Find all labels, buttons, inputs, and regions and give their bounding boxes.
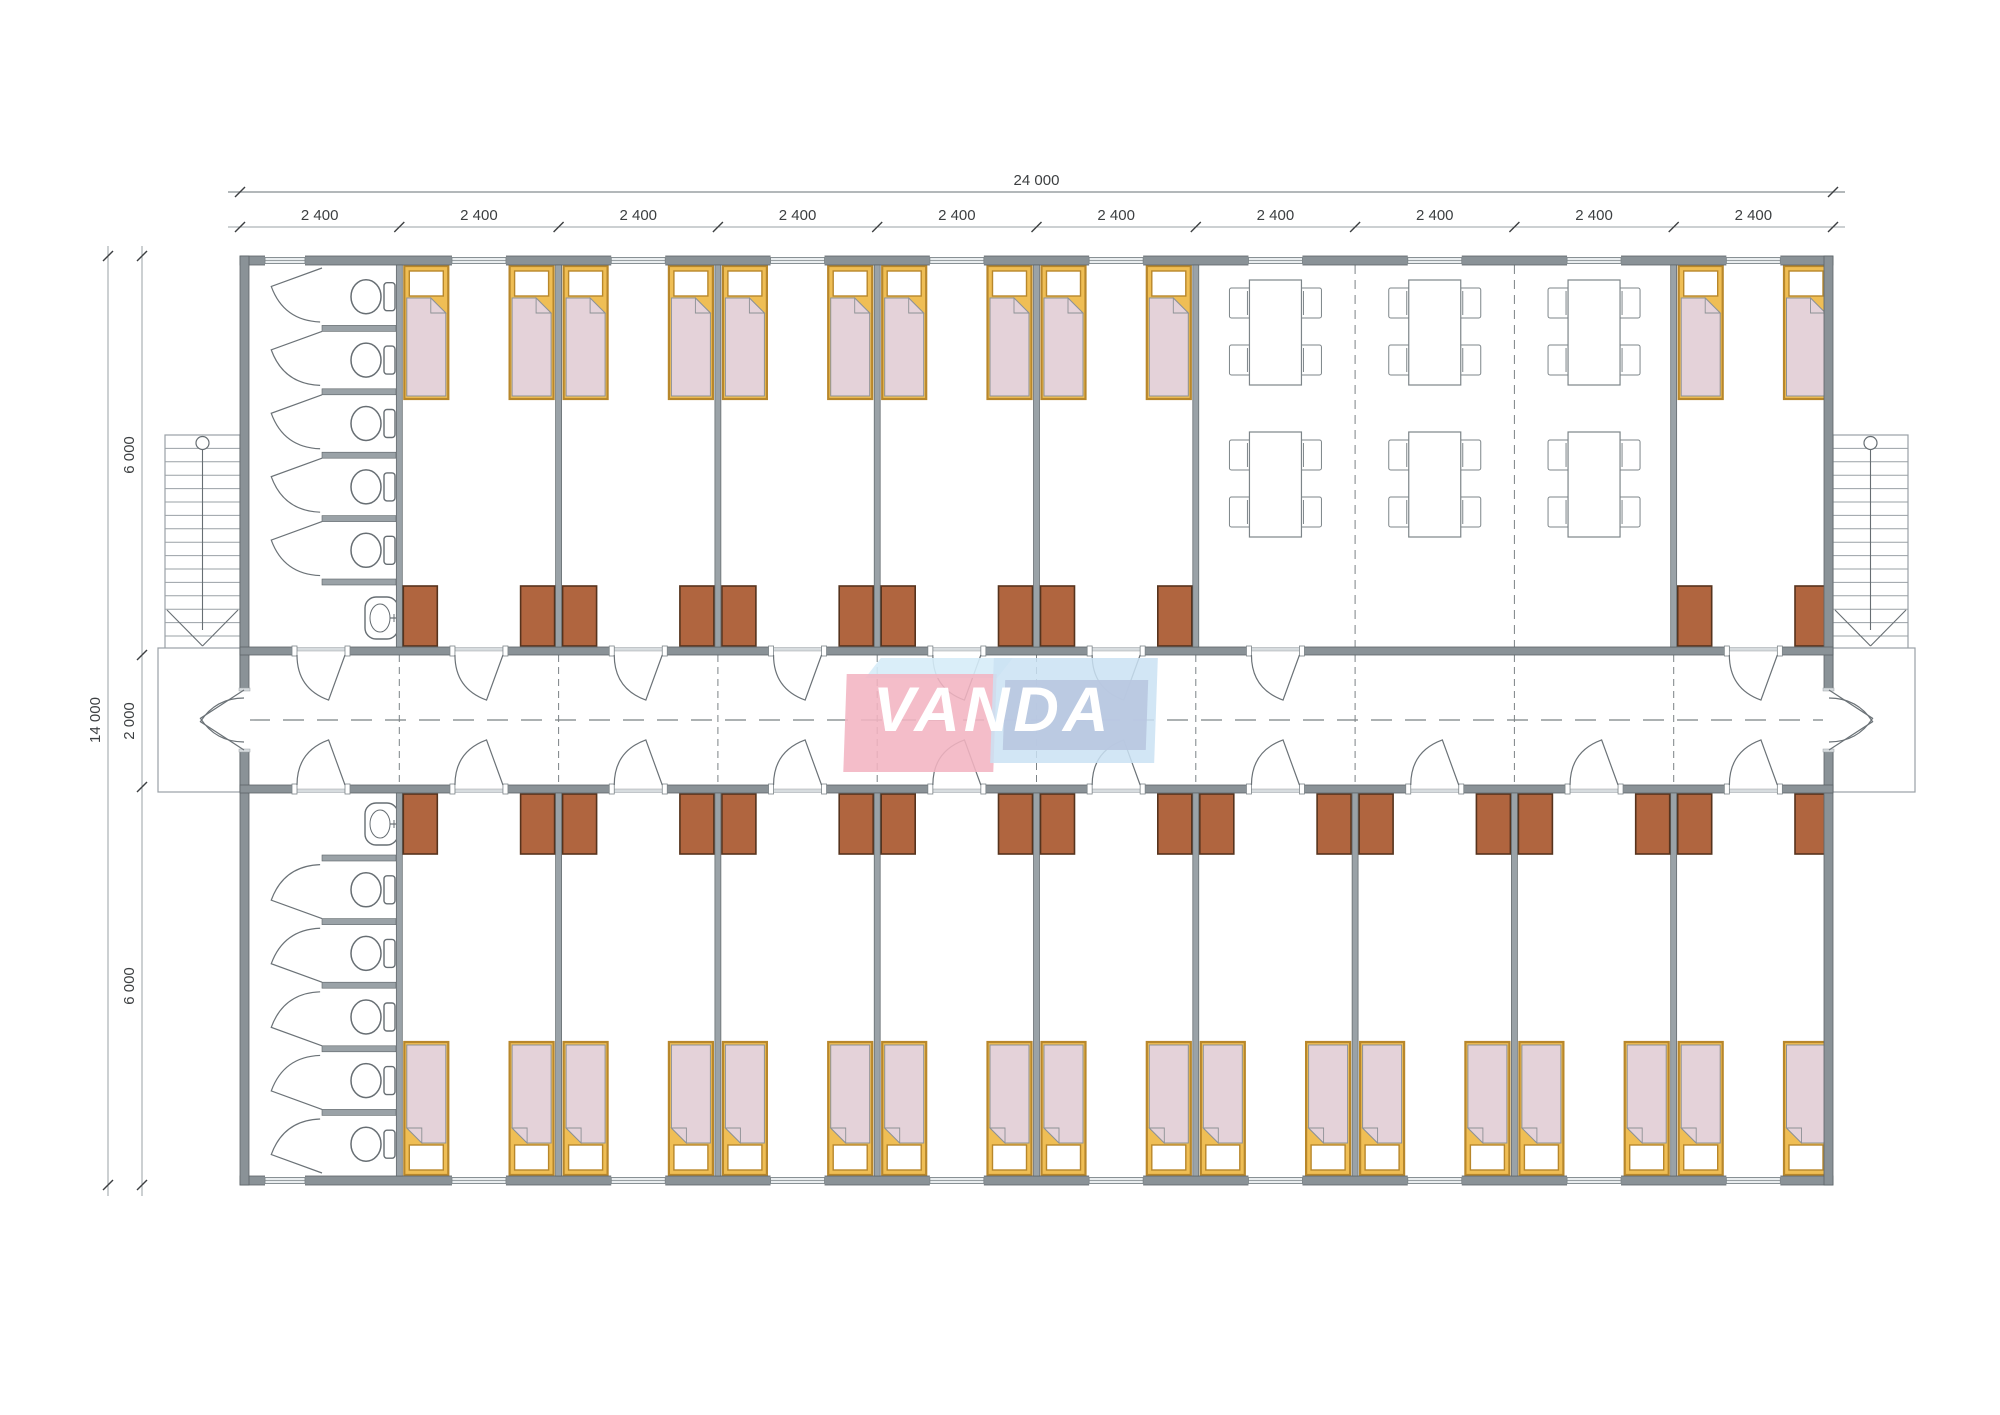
svg-text:14 000: 14 000 [87,697,104,743]
wardrobe [999,586,1033,646]
bed [1679,1042,1723,1175]
svg-text:2 400: 2 400 [1257,207,1295,224]
svg-text:2 400: 2 400 [619,207,657,224]
wardrobe [1636,794,1670,854]
bed [882,266,926,399]
svg-text:2 400: 2 400 [460,207,498,224]
wardrobe [1678,586,1712,646]
svg-text:2 400: 2 400 [1575,207,1613,224]
wardrobe [1158,794,1192,854]
wardrobe [1476,794,1510,854]
bed [988,1042,1032,1175]
bed [1306,1042,1350,1175]
dining-table-group [1389,432,1481,537]
wardrobe [839,794,873,854]
bed [1147,1042,1191,1175]
floor-plan-drawing: 24 0002 4002 4002 4002 4002 4002 4002 40… [0,0,2000,1415]
bed [828,266,872,399]
bed [1147,266,1191,399]
svg-text:2 400: 2 400 [1097,207,1135,224]
bed [669,266,713,399]
svg-text:2 000: 2 000 [121,702,138,740]
bed [723,1042,767,1175]
wardrobe [1359,794,1393,854]
bed [1465,1042,1509,1175]
wardrobe [1158,586,1192,646]
wardrobe [1518,794,1552,854]
dining-table-group [1229,280,1321,385]
svg-text:6 000: 6 000 [121,436,138,474]
bed [1042,266,1086,399]
wardrobe [1041,586,1075,646]
wardrobe [722,586,756,646]
bed [1679,266,1723,399]
svg-text:6 000: 6 000 [121,967,138,1005]
bed [1784,266,1828,399]
bed [1519,1042,1563,1175]
svg-text:2 400: 2 400 [301,207,339,224]
bed [404,266,448,399]
wardrobe [722,794,756,854]
bed [1625,1042,1669,1175]
wardrobe [680,586,714,646]
wardrobe [563,586,597,646]
wardrobe [1200,794,1234,854]
bed [988,266,1032,399]
wardrobe [881,586,915,646]
svg-text:2 400: 2 400 [779,207,817,224]
bathroom-top [271,268,399,639]
bed [404,1042,448,1175]
bed [1042,1042,1086,1175]
wardrobe [1678,794,1712,854]
wardrobe [680,794,714,854]
svg-text:2 400: 2 400 [1416,207,1454,224]
svg-text:24 000: 24 000 [1014,172,1060,189]
dining-table-group [1548,432,1640,537]
wardrobe [839,586,873,646]
wardrobe [563,794,597,854]
dining-table-group [1229,432,1321,537]
svg-text:2 400: 2 400 [1735,207,1773,224]
bed [1201,1042,1245,1175]
bed [510,1042,554,1175]
wardrobe [521,794,555,854]
bed [564,266,608,399]
bed [1784,1042,1828,1175]
wardrobe [881,794,915,854]
wardrobe [999,794,1033,854]
dining-table-group [1389,280,1481,385]
stair-flight [1833,435,1908,650]
wardrobe [521,586,555,646]
bed [669,1042,713,1175]
bed [564,1042,608,1175]
stair-flight [165,435,240,650]
bed [510,266,554,399]
bathroom-bottom [271,803,399,1173]
svg-text:2 400: 2 400 [938,207,976,224]
bed [882,1042,926,1175]
wardrobe [403,794,437,854]
bed [828,1042,872,1175]
bed [1360,1042,1404,1175]
wardrobe [1317,794,1351,854]
bed [723,266,767,399]
dining-table-group [1548,280,1640,385]
wardrobe [1041,794,1075,854]
wardrobe [403,586,437,646]
floor-plan-sheet: 24 0002 4002 4002 4002 4002 4002 4002 40… [0,0,2000,1415]
